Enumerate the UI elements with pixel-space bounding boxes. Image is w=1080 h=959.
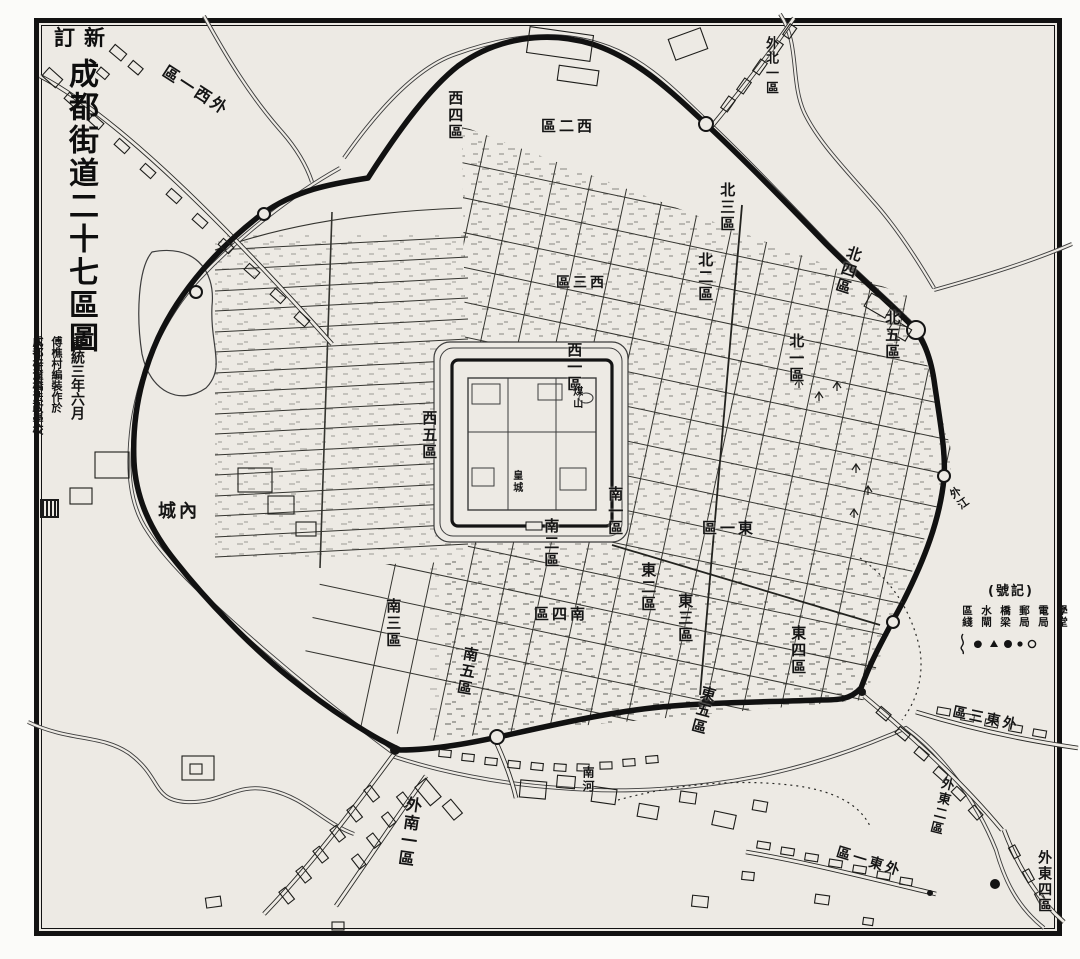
district-label-north-2: 北二區	[697, 252, 713, 303]
legend-symbols	[956, 633, 1044, 655]
district-label-west-5: 西五區	[421, 410, 437, 461]
wavy-line-icon	[961, 634, 963, 654]
title-block: 訂新 成都街道二十七區圖	[48, 22, 114, 355]
district-label-north-1: 北一區	[788, 333, 804, 384]
colophon-author: 傅樵村編裝作於	[48, 336, 64, 516]
legend-item-school: 學堂	[1055, 605, 1070, 631]
district-label-west-4: 西四區	[447, 90, 463, 141]
district-label-south-3: 南三區	[385, 598, 401, 649]
blob-icon	[974, 641, 982, 648]
district-label-north-3: 北三區	[719, 182, 735, 233]
west-gate	[190, 286, 202, 298]
district-label-north-5: 北五區	[884, 310, 900, 361]
legend-item-sluice: 水閘	[979, 605, 994, 631]
legend-item-bridge: 橋梁	[998, 605, 1013, 631]
district-label-south-2: 南二區	[543, 518, 559, 569]
legend-item-post-office: 郵局	[1017, 605, 1032, 631]
district-label-east-4: 東四區	[790, 625, 806, 676]
district-label-east-3: 東三區	[677, 593, 693, 644]
large-dot-icon	[1004, 640, 1012, 648]
south-gate	[490, 730, 504, 744]
legend-items: 區綫 水閘 橋梁 郵局 電局 學堂	[960, 605, 1070, 631]
colophon-date: 宣統三年六月	[67, 336, 87, 516]
map-title-prefix: 訂新	[54, 22, 114, 52]
district-label-east-1: 區一東	[702, 520, 756, 536]
legend-item-district-line: 區綫	[960, 605, 975, 631]
legend-title: (號記)	[952, 580, 1070, 599]
legend-item-telegraph-office: 電局	[1036, 605, 1051, 631]
feature-label-meishan-hill: 煤山	[570, 386, 581, 410]
map-title: 成都街道二十七區圖	[58, 58, 102, 355]
feature-label-south-river: 南河	[581, 766, 594, 794]
northeast-corner-tower	[907, 321, 925, 339]
scanned-map-page: { "title": { "prefix_reading": "新訂", "pr…	[0, 0, 1080, 959]
east-wall-gate	[938, 470, 950, 482]
northwest-gate	[258, 208, 270, 220]
district-label-outer-east-4: 外東四區	[1036, 850, 1051, 914]
circle-icon	[1028, 640, 1035, 647]
seal-stamp	[40, 499, 59, 518]
district-label-south-4: 區四南	[534, 606, 588, 622]
district-label-west-2: 區二西	[541, 118, 595, 134]
district-label-east-2: 東二區	[640, 562, 656, 613]
feature-label-imperial-city: 皇城	[510, 470, 521, 494]
map-linework	[0, 0, 1080, 959]
manchu-city-lanes	[215, 208, 468, 568]
north-gate	[699, 117, 713, 131]
triangle-icon	[990, 640, 998, 647]
colophon: 宣統三年六月 傅樵村編裝作於 成都梓潼橋法政學校	[26, 336, 87, 516]
district-label-south-1: 南一區	[607, 486, 623, 537]
small-dot-icon	[1017, 641, 1022, 646]
legend: (號記) 區綫 水閘 橋梁 郵局 電局 學堂	[952, 580, 1070, 655]
imperial-city-walls	[434, 342, 628, 542]
feature-label-inner-city: 城內	[158, 502, 200, 521]
district-label-west-3: 區三西	[556, 276, 607, 291]
east-gate	[887, 616, 899, 628]
colophon-place: 成都梓潼橋法政學校	[29, 336, 45, 516]
district-label-outer-north-1: 外北一區	[763, 36, 777, 96]
